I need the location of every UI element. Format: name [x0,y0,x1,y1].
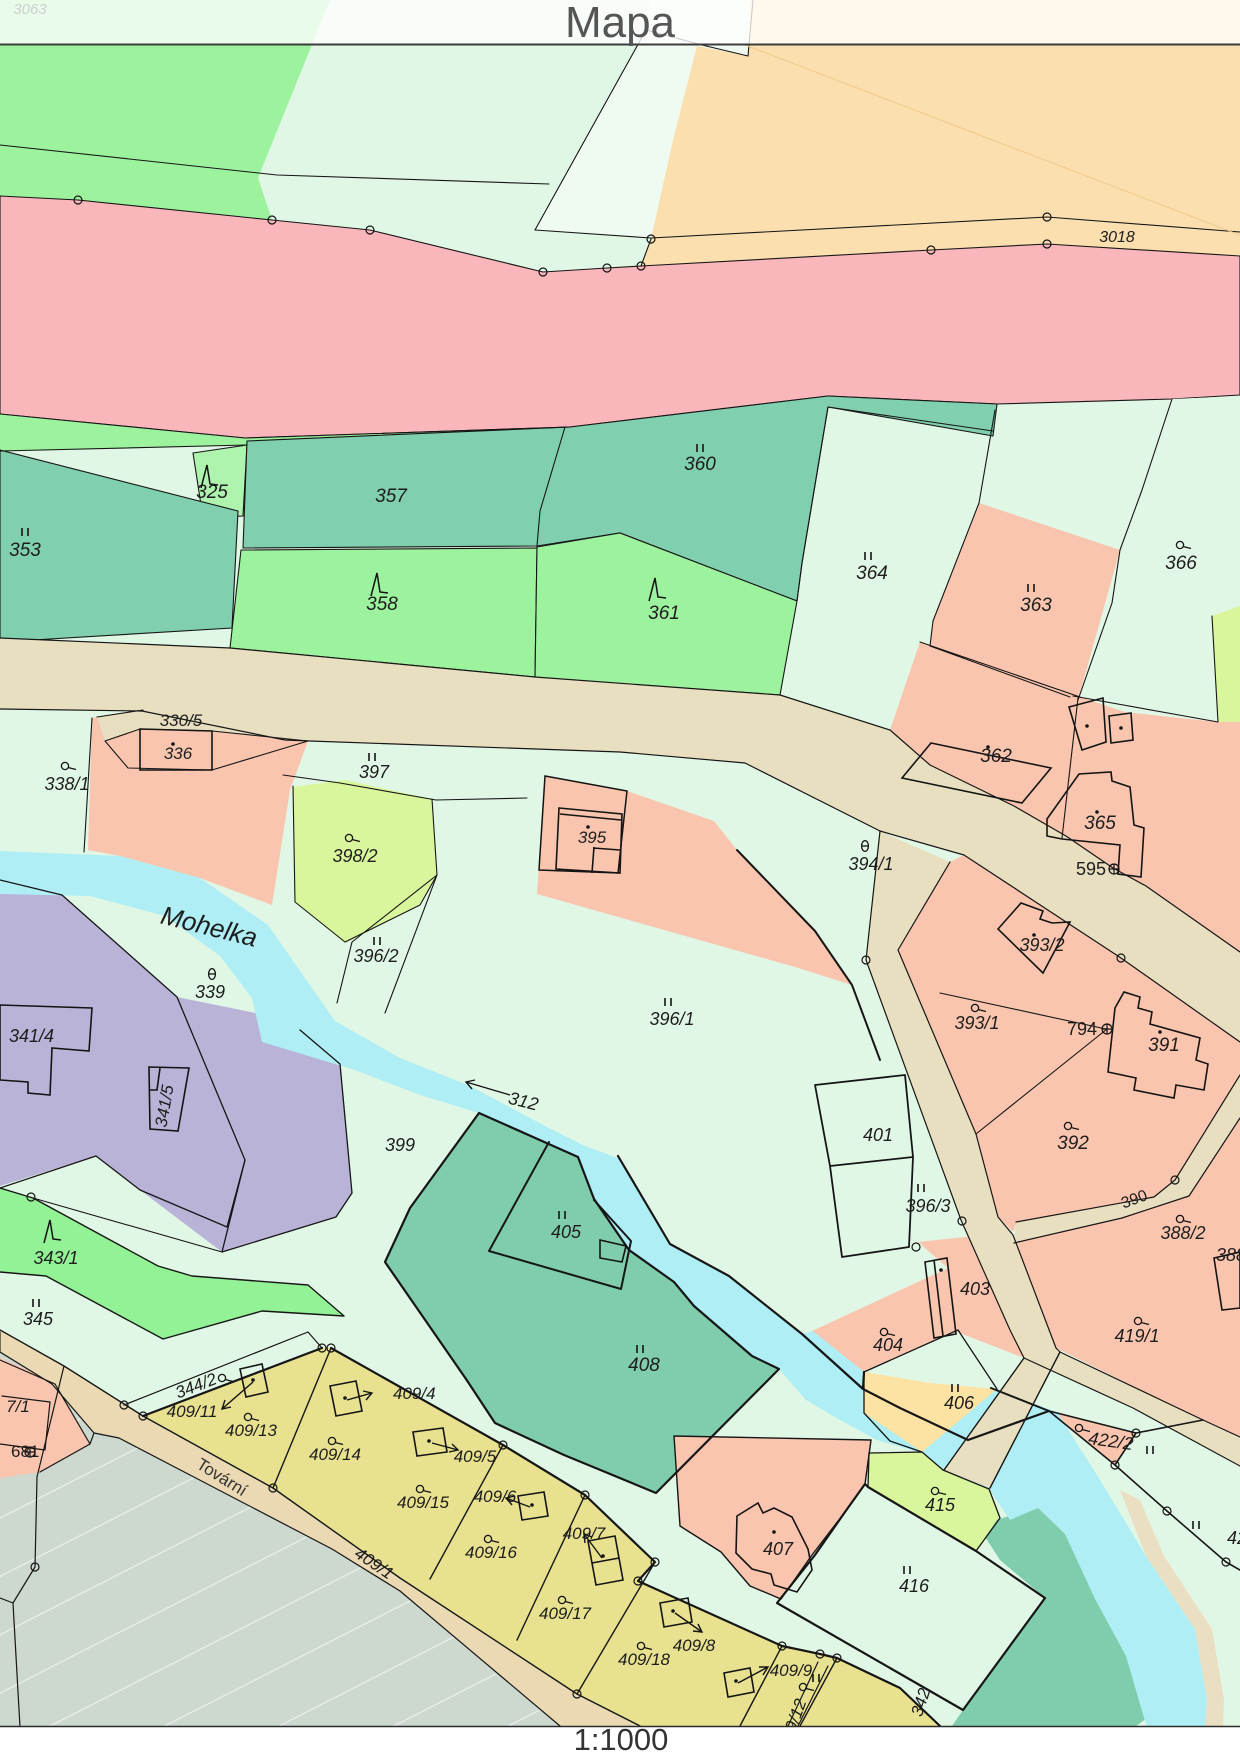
svg-text:341/4: 341/4 [9,1026,54,1046]
svg-text:401: 401 [863,1125,893,1145]
svg-text:409/16: 409/16 [465,1543,518,1562]
svg-text:406: 406 [944,1393,975,1413]
svg-text:681: 681 [11,1442,39,1461]
svg-text:405: 405 [551,1222,582,1242]
svg-text:409/11: 409/11 [167,1402,218,1421]
svg-text:365: 365 [1084,813,1116,834]
svg-text:361: 361 [648,603,680,624]
svg-text:408: 408 [628,1355,660,1376]
svg-text:1:1000: 1:1000 [574,1722,669,1754]
svg-text:404: 404 [873,1335,903,1355]
svg-text:399: 399 [385,1135,415,1155]
svg-text:394/1: 394/1 [848,854,893,874]
svg-text:393/1: 393/1 [954,1013,999,1033]
svg-text:396/2: 396/2 [353,946,398,966]
svg-text:353: 353 [9,540,41,561]
svg-text:388: 388 [1216,1245,1240,1265]
svg-text:345: 345 [23,1309,54,1329]
svg-text:360: 360 [684,454,716,475]
svg-text:357: 357 [375,486,408,507]
svg-text:409/5: 409/5 [454,1447,497,1466]
svg-text:392: 392 [1057,1133,1089,1154]
svg-text:397: 397 [359,762,390,782]
svg-text:366: 366 [1165,553,1197,574]
svg-text:3018: 3018 [1099,229,1135,246]
svg-text:407: 407 [763,1539,794,1559]
svg-text:403: 403 [960,1279,990,1299]
svg-text:409/17: 409/17 [539,1604,592,1623]
svg-text:409/4: 409/4 [393,1384,436,1403]
svg-text:595: 595 [1076,859,1106,879]
svg-text:409/15: 409/15 [397,1493,450,1512]
svg-text:336: 336 [164,744,193,763]
svg-text:358: 358 [366,594,398,615]
svg-text:409/8: 409/8 [673,1636,716,1655]
svg-text:415: 415 [925,1495,956,1515]
svg-text:409/18: 409/18 [618,1650,671,1669]
svg-text:393/2: 393/2 [1019,935,1064,955]
svg-text:396/1: 396/1 [649,1009,694,1029]
svg-text:409/7: 409/7 [563,1524,606,1543]
svg-text:409/9: 409/9 [770,1661,813,1680]
svg-text:7/1: 7/1 [6,1397,30,1416]
svg-text:362: 362 [980,746,1012,767]
svg-text:388/2: 388/2 [1160,1223,1205,1243]
svg-text:409/14: 409/14 [309,1445,361,1464]
svg-text:330/5: 330/5 [160,711,203,730]
svg-text:416: 416 [899,1576,930,1596]
svg-text:395: 395 [578,828,607,847]
svg-text:391: 391 [1148,1035,1180,1056]
svg-text:343/1: 343/1 [33,1248,78,1268]
svg-text:364: 364 [856,563,888,584]
svg-text:396/3: 396/3 [905,1196,950,1216]
svg-text:419/1: 419/1 [1114,1326,1159,1346]
svg-text:325: 325 [196,482,228,503]
svg-text:363: 363 [1020,595,1052,616]
svg-text:423: 423 [1227,1528,1240,1548]
svg-text:339: 339 [195,982,225,1002]
svg-text:409/6: 409/6 [474,1487,517,1506]
svg-text:338/1: 338/1 [44,774,89,794]
svg-text:Mapa: Mapa [565,0,676,47]
svg-text:398/2: 398/2 [332,846,377,866]
svg-text:794: 794 [1067,1019,1097,1039]
svg-text:409/13: 409/13 [225,1421,278,1440]
